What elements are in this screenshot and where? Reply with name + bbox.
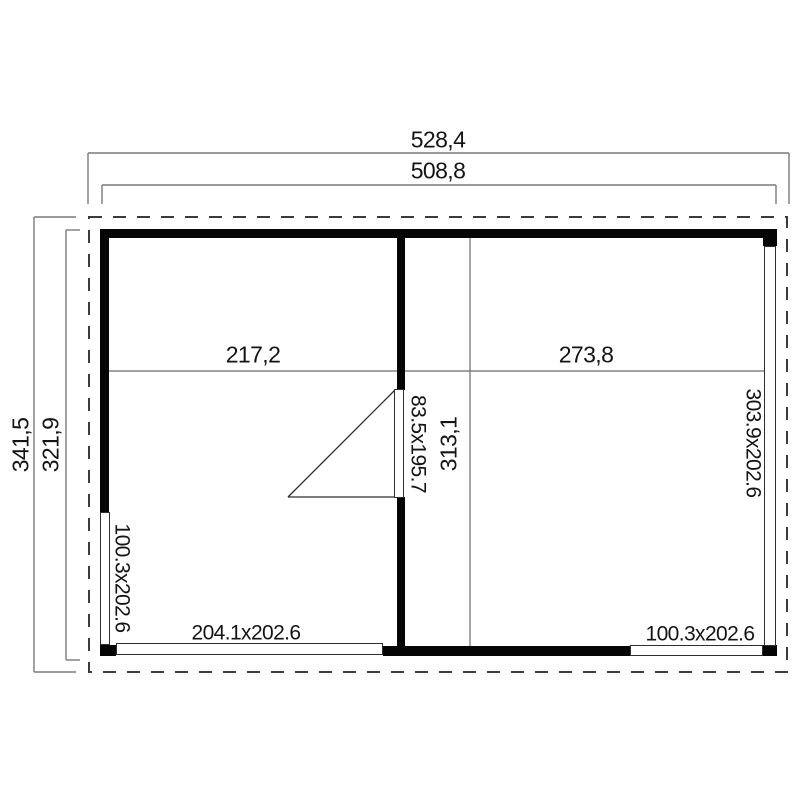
wall-partition-upper	[397, 238, 405, 390]
wall-left-upper	[100, 229, 109, 512]
interior-door-leaf	[394, 389, 404, 498]
right-room-width-label: 273,8	[559, 344, 614, 367]
body-depth-label: 321,9	[40, 418, 63, 473]
door-swing-line	[288, 390, 395, 497]
wall-bottom-middle	[383, 646, 630, 656]
interior-door-size-label: 83.5x195.7	[408, 395, 429, 493]
floor-plan: 528,4 508,8 341,5 321,9 217,2 273,8 313,…	[0, 0, 800, 800]
right-wall-glazing-size-label: 303.9x202.6	[743, 388, 764, 497]
corner-post-top-right	[763, 229, 777, 246]
body-depth-dimension-line	[66, 230, 80, 660]
wall-top	[100, 229, 777, 238]
body-width-label: 508,8	[411, 160, 466, 183]
front-left-window-size-label: 204.1x202.6	[191, 623, 300, 644]
body-width-dimension-line	[102, 185, 776, 204]
front-right-window	[630, 645, 763, 656]
wall-partition-lower	[397, 497, 405, 647]
right-room-depth-label: 313,1	[438, 417, 461, 472]
left-wall-window-size-label: 100.3x202.6	[112, 523, 133, 632]
overall-depth-label: 341,5	[10, 418, 33, 473]
left-room-width-label: 217,2	[226, 344, 281, 367]
front-left-window	[116, 643, 383, 655]
overall-width-label: 528,4	[411, 129, 466, 152]
left-wall-window	[100, 512, 110, 645]
corner-post-bottom-right	[763, 645, 777, 656]
corner-post-bottom-left	[100, 645, 116, 656]
right-wall-glazing	[764, 246, 776, 646]
front-right-window-size-label: 100.3x202.6	[645, 624, 754, 645]
